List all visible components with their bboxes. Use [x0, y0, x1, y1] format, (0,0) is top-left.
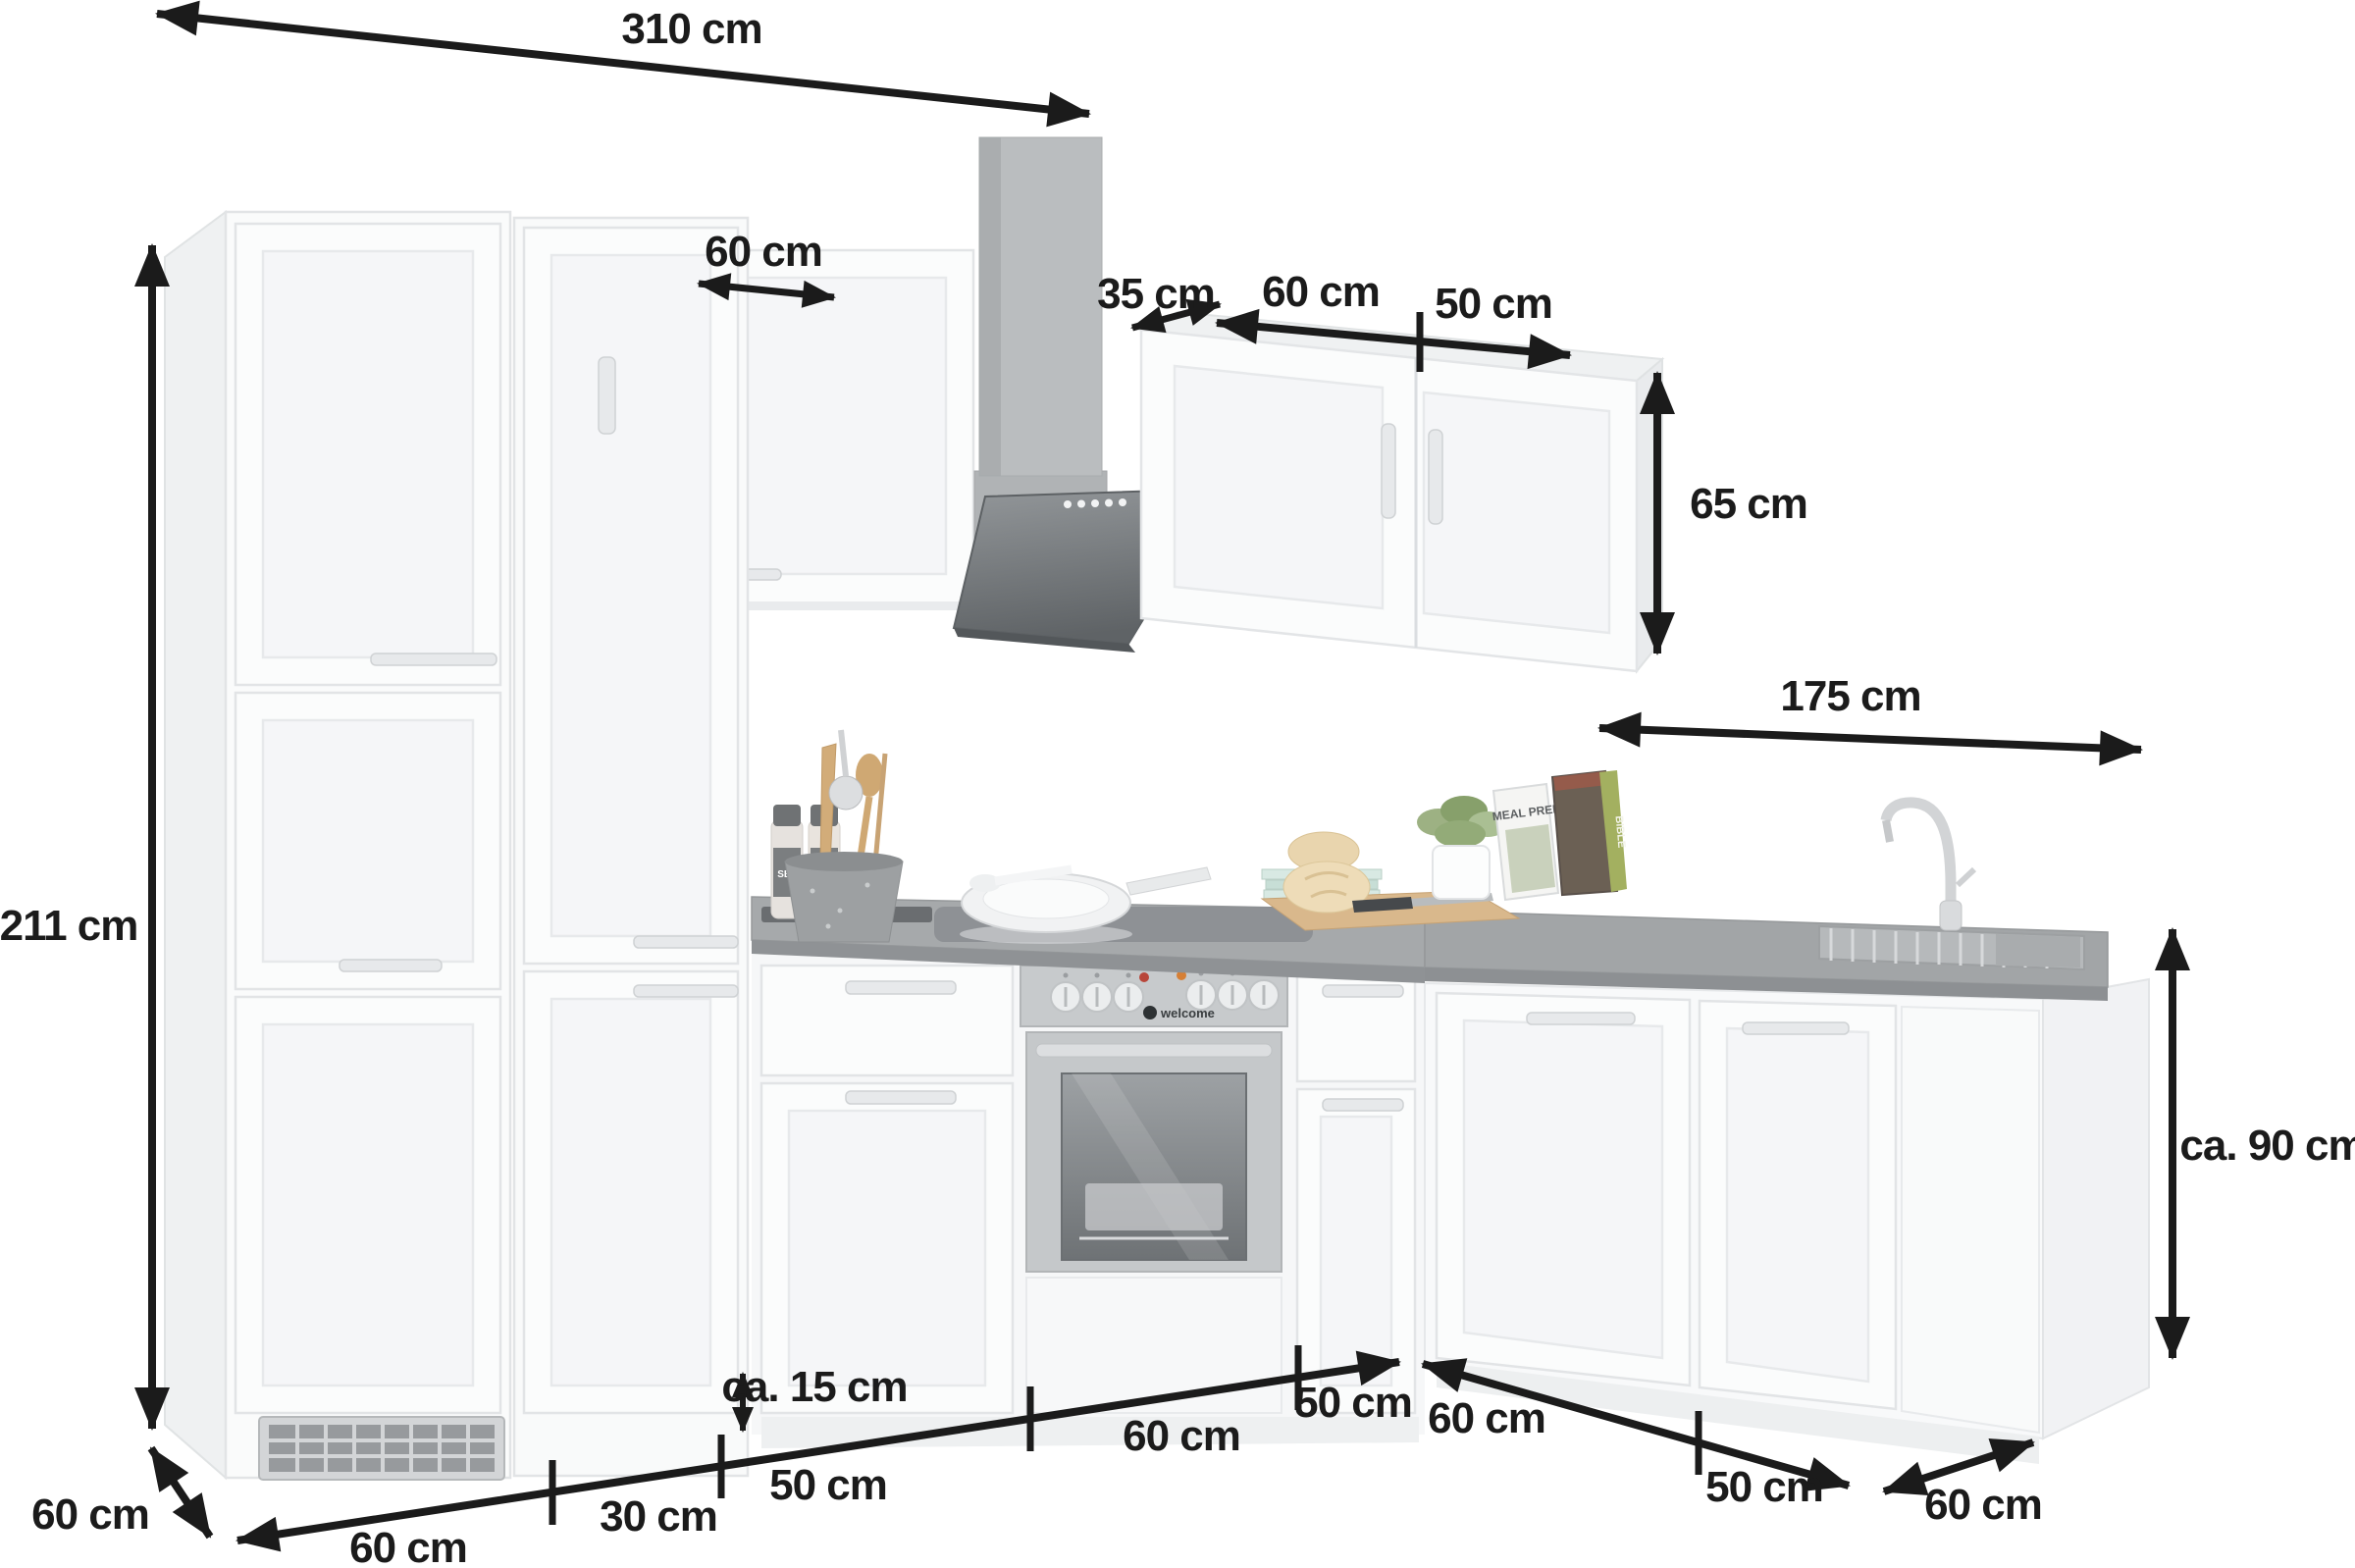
sink-basin: [1996, 934, 2080, 967]
base-units-right: [1425, 979, 2149, 1464]
vent-grille: [259, 1417, 504, 1480]
label-fridge-unit-width: 60 cm: [349, 1527, 467, 1568]
label-pullout-unit-width: 30 cm: [600, 1495, 717, 1539]
label-plinth-height: ca. 15 cm: [721, 1366, 907, 1409]
oven-indicator-light: [1139, 972, 1149, 982]
label-wall-cabinet-height: 65 cm: [1690, 483, 1807, 526]
cabinet-handle: [371, 653, 497, 665]
label-left-wall-cabinet: 60 cm: [705, 231, 822, 274]
right-wall-cabinets: [1141, 312, 1662, 671]
end-side-panel: [2043, 979, 2149, 1438]
pullout-tall-unit: [514, 218, 748, 1476]
label-hood-clearance: 35 cm: [1097, 273, 1215, 316]
cabinet-handle: [599, 357, 615, 434]
oven-unit: welcome: [1020, 966, 1287, 1413]
cookbook-front: MEAL PREP: [1491, 784, 1561, 900]
cabinet-handle: [634, 936, 738, 948]
drawer-base-unit: [761, 966, 1013, 1413]
oven-brand-logo-icon: [1143, 1006, 1157, 1019]
cabinet-handle: [1429, 430, 1442, 524]
plant-pot: [1433, 846, 1490, 899]
label-right-wall-left-door: 60 cm: [1262, 271, 1380, 314]
label-drawer-unit-width: 50 cm: [769, 1464, 887, 1507]
fridge-tall-unit: [165, 212, 510, 1480]
right-of-oven-base-unit: [1297, 971, 1415, 1413]
label-depth-right: 60 cm: [1924, 1484, 2042, 1527]
ladle: [829, 776, 863, 810]
faucet: [1886, 803, 1974, 930]
label-depth-left: 60 cm: [31, 1493, 149, 1537]
corner-base-unit: [1437, 993, 1690, 1385]
label-right-wall-right-door: 50 cm: [1435, 283, 1552, 326]
label-total-width: 310 cm: [621, 8, 761, 51]
label-right-run-width: 175 cm: [1780, 675, 1920, 718]
kitchen-dimension-diagram: welcome: [0, 0, 2355, 1568]
cookbook-back: BIBLE: [1552, 770, 1627, 895]
label-oven-unit-width: 60 cm: [1123, 1415, 1240, 1458]
cabinet-handle: [340, 960, 442, 971]
cabinet-handle: [1382, 424, 1395, 518]
label-worktop-height: ca. 90 cm: [2179, 1124, 2355, 1168]
baking-tray: [1085, 1183, 1223, 1230]
cabinet-handle: [634, 985, 738, 997]
oven-brand-text: welcome: [1160, 1006, 1215, 1020]
label-total-height: 211 cm: [0, 905, 137, 948]
oven-door-handle: [1036, 1044, 1272, 1057]
sink-base-unit: [1700, 1001, 1896, 1409]
arrow-depth-left: [151, 1448, 210, 1537]
label-right-of-oven-width: 50 cm: [1294, 1382, 1412, 1425]
arrow-right-run-width: [1599, 728, 2141, 750]
label-sink-unit-width: 50 cm: [1705, 1466, 1823, 1509]
label-corner-unit-width: 60 cm: [1428, 1397, 1545, 1440]
kitchen-illustration: welcome: [0, 0, 2355, 1568]
